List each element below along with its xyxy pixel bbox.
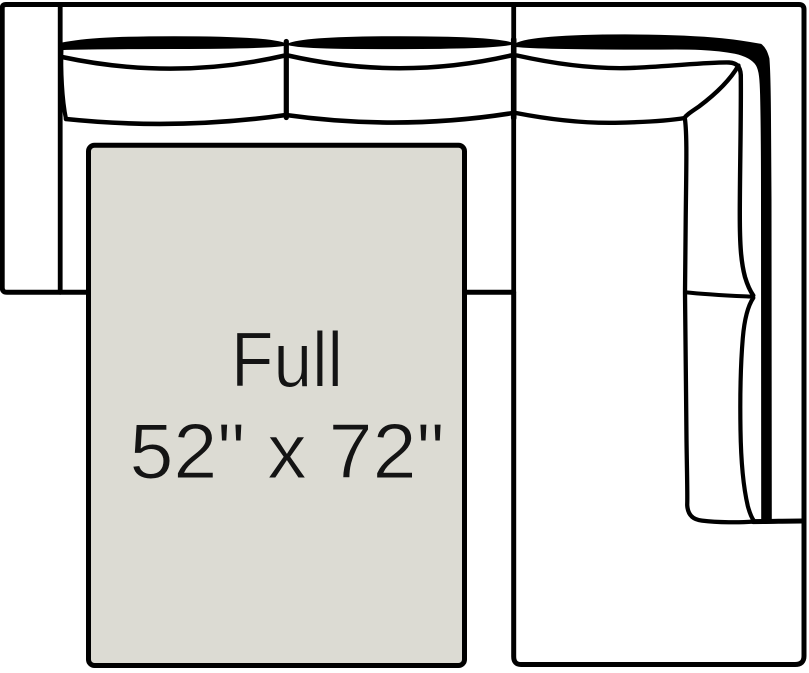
svg-text:52" x 72": 52" x 72" <box>130 407 445 495</box>
svg-text:Full: Full <box>231 316 343 404</box>
